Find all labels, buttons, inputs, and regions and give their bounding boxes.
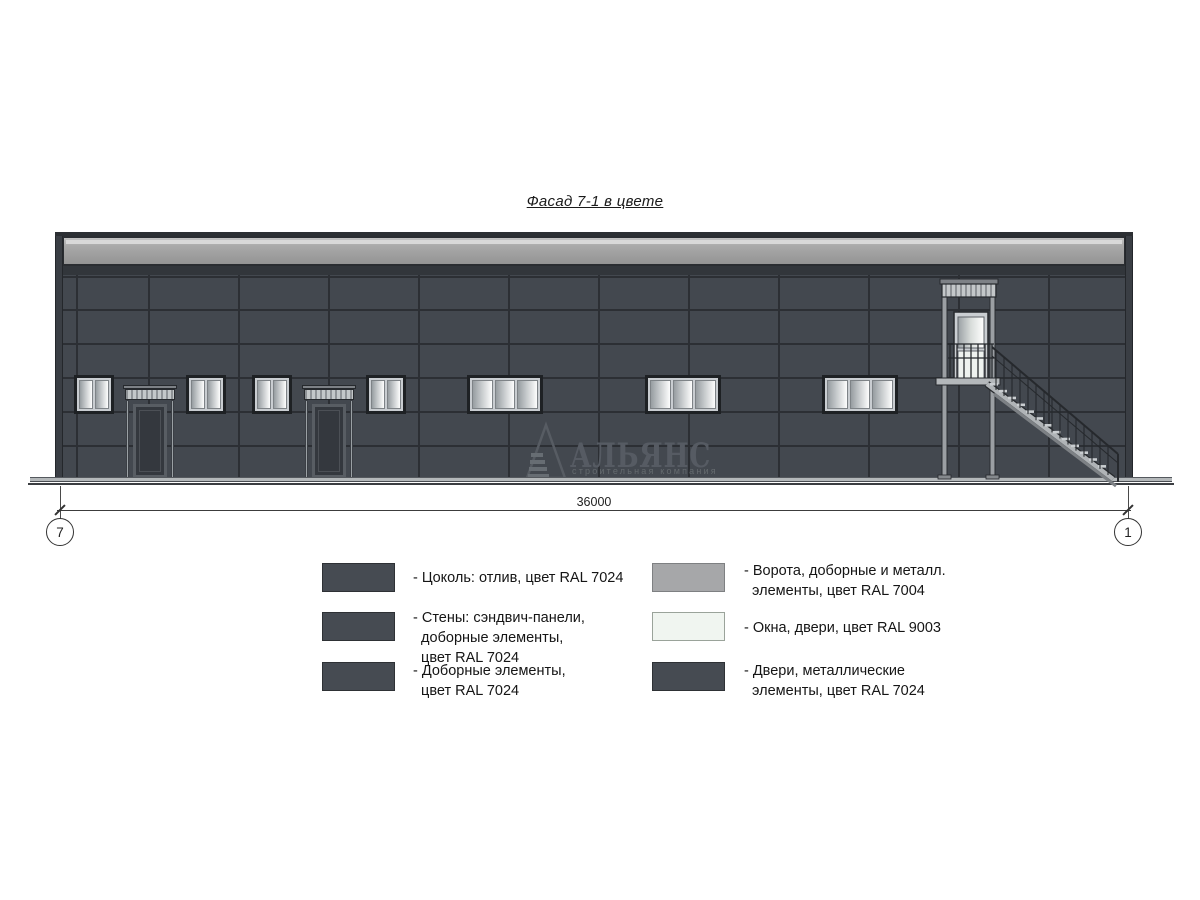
canopy-post-left — [305, 400, 308, 478]
window-pane — [207, 380, 221, 409]
window-pane — [79, 380, 93, 409]
window — [467, 375, 543, 414]
dimension-line — [57, 510, 1131, 511]
legend-swatch — [322, 612, 395, 641]
upper-door-canopy-cap — [940, 279, 998, 284]
window — [645, 375, 721, 414]
legend-label: - Окна, двери, цвет RAL 9003 — [744, 618, 941, 638]
legend-label: - Ворота, доборные и металл. элементы, ц… — [744, 561, 946, 601]
legend-label-line: - Окна, двери, цвет RAL 9003 — [744, 618, 941, 638]
drawing-title: Фасад 7-1 в цвете — [445, 193, 745, 210]
window — [74, 375, 114, 414]
door-leaf — [318, 410, 340, 472]
legend-swatch — [322, 563, 395, 592]
stair-stringer — [987, 384, 1113, 479]
entrance-door — [312, 404, 346, 478]
legend-swatch — [652, 612, 725, 641]
legend-label-line: - Ворота, доборные и металл. — [744, 561, 946, 581]
door-leaf — [139, 410, 161, 472]
window — [822, 375, 898, 414]
parapet-highlight — [66, 240, 1122, 244]
window-pane — [673, 380, 694, 409]
legend-label-line: цвет RAL 7024 — [413, 681, 566, 701]
window-pane — [257, 380, 271, 409]
legend-label-line: - Стены: сэндвич-панели, — [413, 608, 585, 628]
canopy-post-right — [171, 400, 174, 478]
window-pane — [95, 380, 109, 409]
axis-label-left: 7 — [56, 525, 64, 540]
legend-label: - Доборные элементы, цвет RAL 7024 — [413, 661, 566, 701]
legend-label-line: доборные элементы, — [413, 628, 585, 648]
legend-label: - Стены: сэндвич-панели, доборные элемен… — [413, 608, 585, 668]
extension-line-right — [1128, 486, 1129, 519]
window-pane — [517, 380, 538, 409]
entrance-door — [133, 404, 167, 478]
stair-midrail — [992, 356, 1118, 463]
window-pane — [273, 380, 287, 409]
corner-trim-left — [55, 236, 63, 478]
stair-stringer-far — [994, 394, 1116, 486]
legend-label: - Цоколь: отлив, цвет RAL 7024 — [413, 568, 623, 588]
exterior-stair-assembly — [930, 270, 1180, 490]
legend-label-line: - Доборные элементы, — [413, 661, 566, 681]
watermark-subtitle: строительная компания — [572, 466, 718, 476]
upper-door-canopy — [942, 284, 996, 297]
window — [252, 375, 292, 414]
canopy-post-right — [350, 400, 353, 478]
window-pane — [695, 380, 716, 409]
parapet-band — [62, 236, 1126, 266]
window-pane — [387, 380, 401, 409]
window-pane — [650, 380, 671, 409]
window-pane — [472, 380, 493, 409]
axis-bubble-7: 7 — [46, 518, 74, 546]
door-canopy — [304, 389, 354, 400]
window-pane — [850, 380, 871, 409]
axis-label-right: 1 — [1124, 525, 1132, 540]
legend-label-line: элементы, цвет RAL 7024 — [744, 681, 925, 701]
legend-label-line: - Цоколь: отлив, цвет RAL 7024 — [413, 568, 623, 588]
legend-label: - Двери, металлические элементы, цвет RA… — [744, 661, 925, 701]
door-canopy — [125, 389, 175, 400]
stair-balusters — [996, 350, 1108, 475]
extension-line-left — [60, 486, 61, 519]
window-pane — [495, 380, 516, 409]
watermark-logo-triangle — [520, 420, 570, 482]
legend-swatch — [652, 563, 725, 592]
dimension-value: 36000 — [544, 495, 644, 509]
window — [366, 375, 406, 414]
canopy-post-left — [126, 400, 129, 478]
window-pane — [827, 380, 848, 409]
legend-label-line: элементы, цвет RAL 7004 — [744, 581, 946, 601]
legend-swatch — [322, 662, 395, 691]
axis-bubble-1: 1 — [1114, 518, 1142, 546]
stair-post-left — [942, 294, 947, 478]
window-pane — [371, 380, 385, 409]
window-pane — [191, 380, 205, 409]
window — [186, 375, 226, 414]
window-pane — [872, 380, 893, 409]
legend-swatch — [652, 662, 725, 691]
legend-label-line: - Двери, металлические — [744, 661, 925, 681]
